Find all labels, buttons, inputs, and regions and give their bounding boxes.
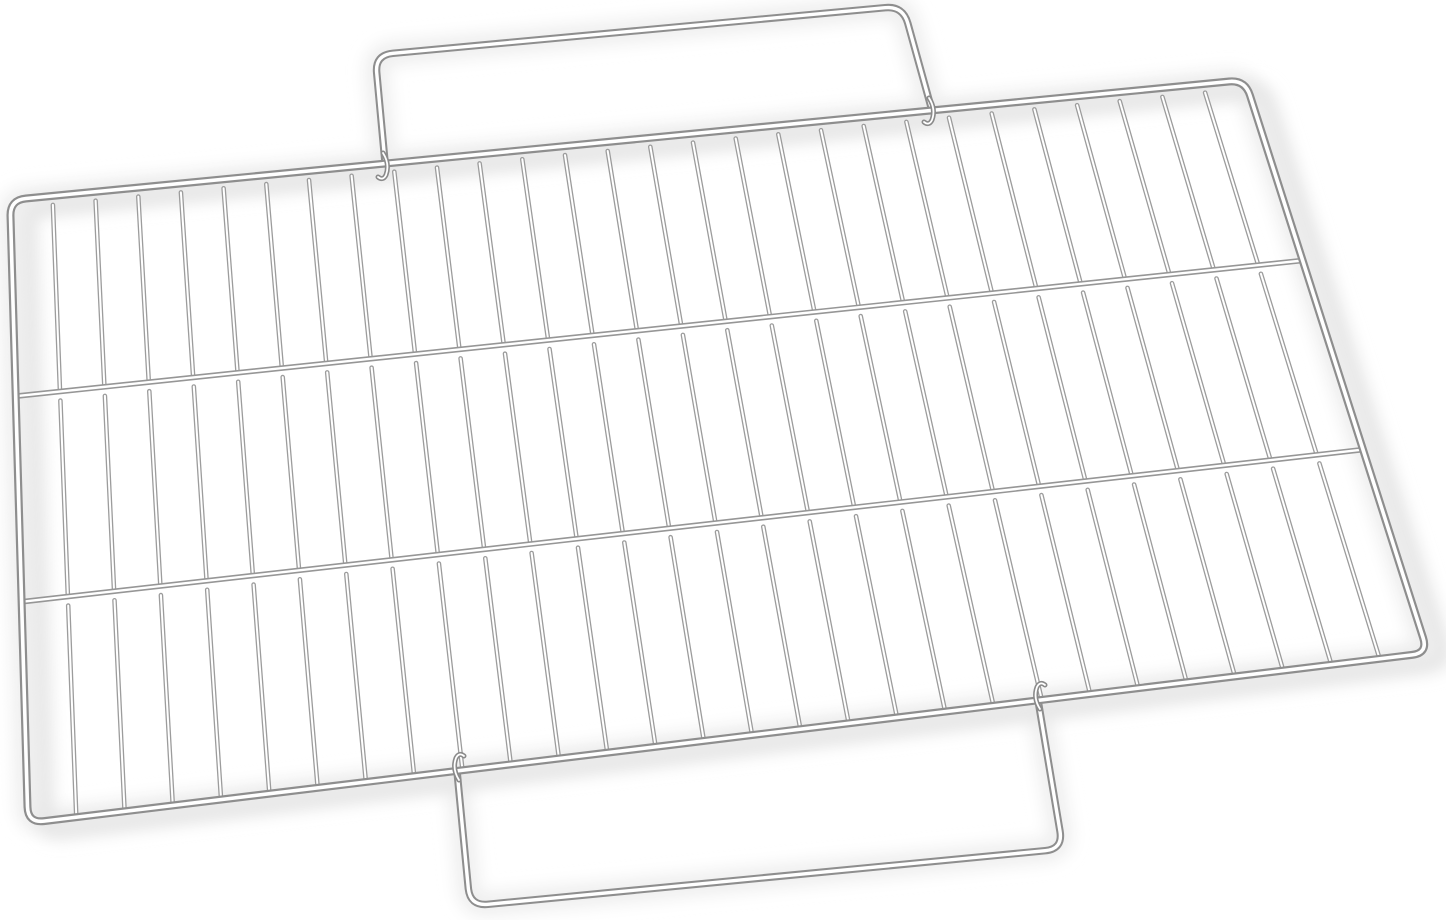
drop-shadow [10,8,1442,905]
grate-crossbars [16,261,1363,602]
handle-hooks [378,98,1045,780]
product-photo [0,0,1446,920]
grate-svg [0,0,1446,920]
grate-rods [53,93,1380,817]
